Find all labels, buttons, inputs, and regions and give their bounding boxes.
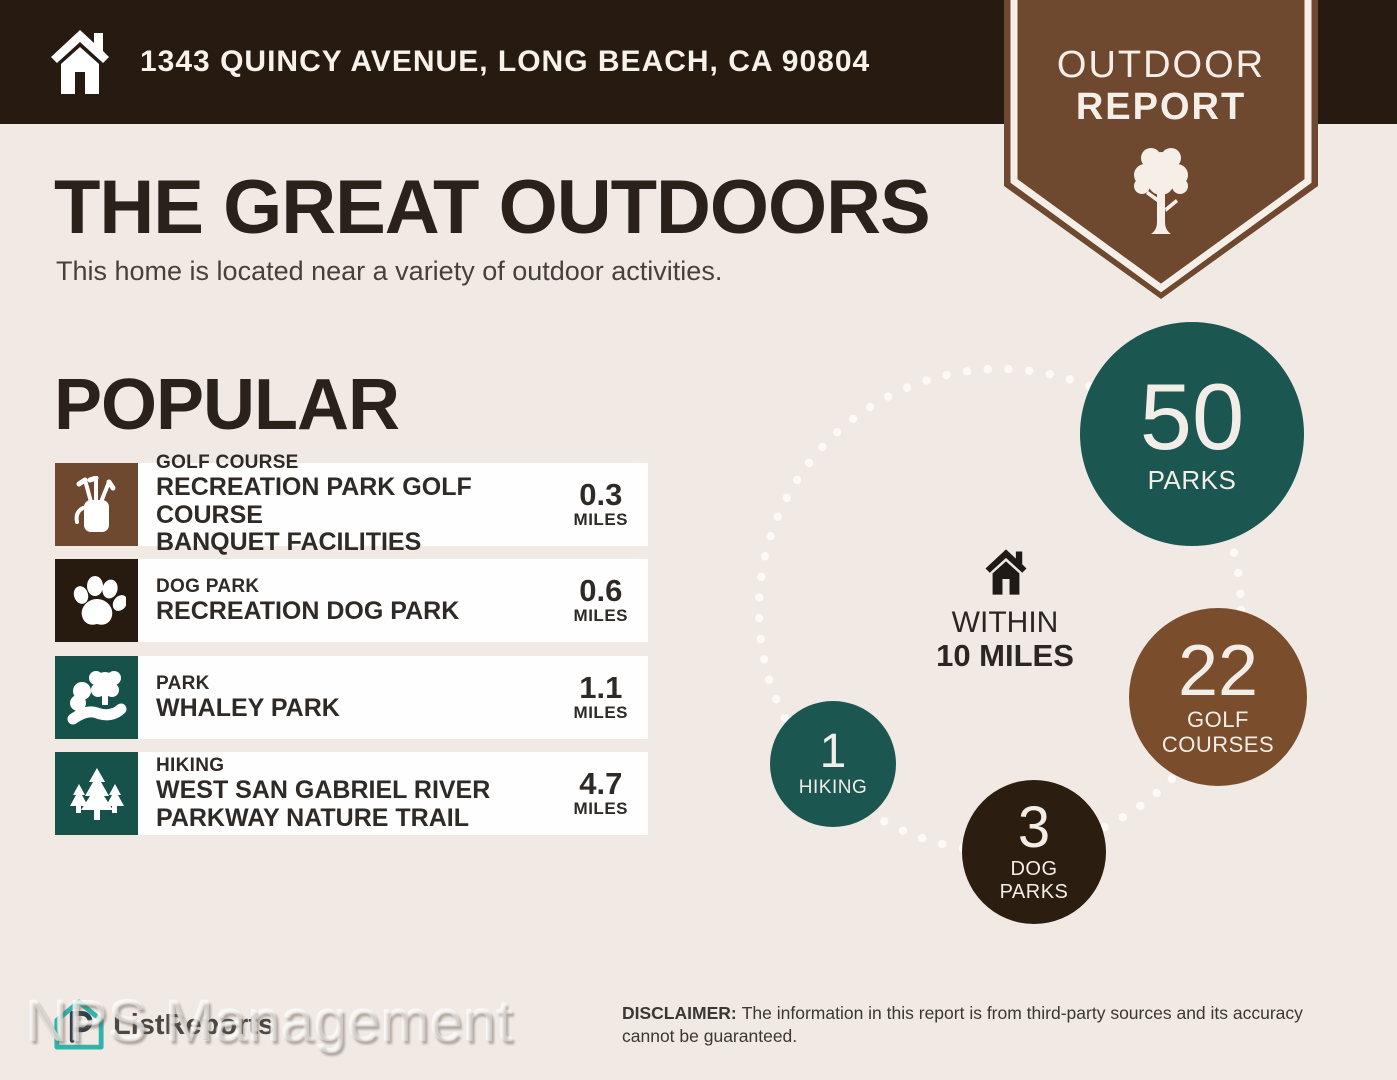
home-icon	[48, 28, 112, 96]
list-item-content: PARK WHALEY PARK 1.1 MILES	[138, 656, 648, 739]
pine-trees-icon	[55, 752, 138, 835]
list-item-hiking: HIKING WEST SAN GABRIEL RIVER PARKWAY NA…	[55, 752, 648, 835]
list-item-golf-course: GOLF COURSE RECREATION PARK GOLF COURSE …	[55, 463, 648, 546]
item-category: GOLF COURSE	[156, 452, 564, 474]
paw-icon	[55, 559, 138, 642]
bubble-parks: 50 PARKS	[1080, 322, 1304, 546]
item-distance: 0.6 MILES	[564, 575, 628, 626]
bubble-hiking: 1 HIKING	[770, 701, 896, 827]
home-icon-center	[981, 548, 1031, 596]
item-name: WHALEY PARK	[156, 695, 340, 723]
distance-unit: MILES	[574, 510, 628, 530]
bubble-dog-parks: 3 DOG PARKS	[962, 780, 1106, 924]
badge-title-line1: OUTDOOR	[1004, 44, 1318, 87]
within-miles-label: 10 MILES	[915, 638, 1095, 674]
page-subtitle: This home is located near a variety of o…	[56, 256, 722, 287]
page-title: THE GREAT OUTDOORS	[54, 164, 930, 251]
bubble-label: DOG PARKS	[1000, 858, 1069, 904]
bubble-value: 1	[820, 729, 847, 775]
distance-value: 1.1	[574, 672, 628, 703]
distance-value: 0.6	[574, 575, 628, 606]
item-name: RECREATION PARK GOLF COURSE BANQUET FACI…	[156, 474, 564, 557]
property-address: 1343 QUINCY AVENUE, LONG BEACH, CA 90804	[140, 0, 870, 124]
golf-bag-icon	[55, 463, 138, 546]
outdoor-report-badge: OUTDOOR REPORT	[1004, 0, 1318, 302]
list-item-park: PARK WHALEY PARK 1.1 MILES	[55, 656, 648, 739]
bubble-value: 3	[1018, 800, 1050, 855]
bubble-label: HIKING	[799, 777, 867, 799]
tree-icon	[1124, 144, 1198, 240]
item-distance: 1.1 MILES	[564, 672, 628, 723]
badge-title-line2: REPORT	[1004, 86, 1318, 129]
item-name: WEST SAN GABRIEL RIVER PARKWAY NATURE TR…	[156, 777, 490, 832]
distance-value: 4.7	[574, 768, 628, 799]
bubble-value: 50	[1140, 372, 1245, 461]
distance-unit: MILES	[574, 799, 628, 819]
item-distance: 4.7 MILES	[564, 768, 628, 819]
popular-heading: POPULAR	[54, 364, 399, 446]
bubble-golf-courses: 22 GOLF COURSES	[1129, 608, 1307, 786]
item-name: RECREATION DOG PARK	[156, 598, 459, 626]
item-distance: 0.3 MILES	[564, 479, 628, 530]
list-item-content: GOLF COURSE RECREATION PARK GOLF COURSE …	[138, 463, 648, 546]
park-path-icon	[55, 656, 138, 739]
outdoor-report-page: 1343 QUINCY AVENUE, LONG BEACH, CA 90804…	[0, 0, 1397, 1080]
list-item-dog-park: DOG PARK RECREATION DOG PARK 0.6 MILES	[55, 559, 648, 642]
disclaimer: DISCLAIMER:The information in this repor…	[622, 1002, 1337, 1049]
disclaimer-label: DISCLAIMER:	[622, 1003, 737, 1023]
list-item-content: DOG PARK RECREATION DOG PARK 0.6 MILES	[138, 559, 648, 642]
bubble-label: GOLF COURSES	[1162, 707, 1274, 758]
item-category: PARK	[156, 673, 340, 695]
list-item-content: HIKING WEST SAN GABRIEL RIVER PARKWAY NA…	[138, 752, 648, 835]
distance-unit: MILES	[574, 606, 628, 626]
item-category: DOG PARK	[156, 576, 459, 598]
item-category: HIKING	[156, 755, 490, 777]
within-label: WITHIN	[915, 606, 1095, 640]
distance-unit: MILES	[574, 703, 628, 723]
bubble-value: 22	[1178, 637, 1258, 705]
distance-value: 0.3	[574, 479, 628, 510]
watermark: NPS Management	[26, 988, 514, 1055]
bubble-label: PARKS	[1148, 466, 1237, 496]
